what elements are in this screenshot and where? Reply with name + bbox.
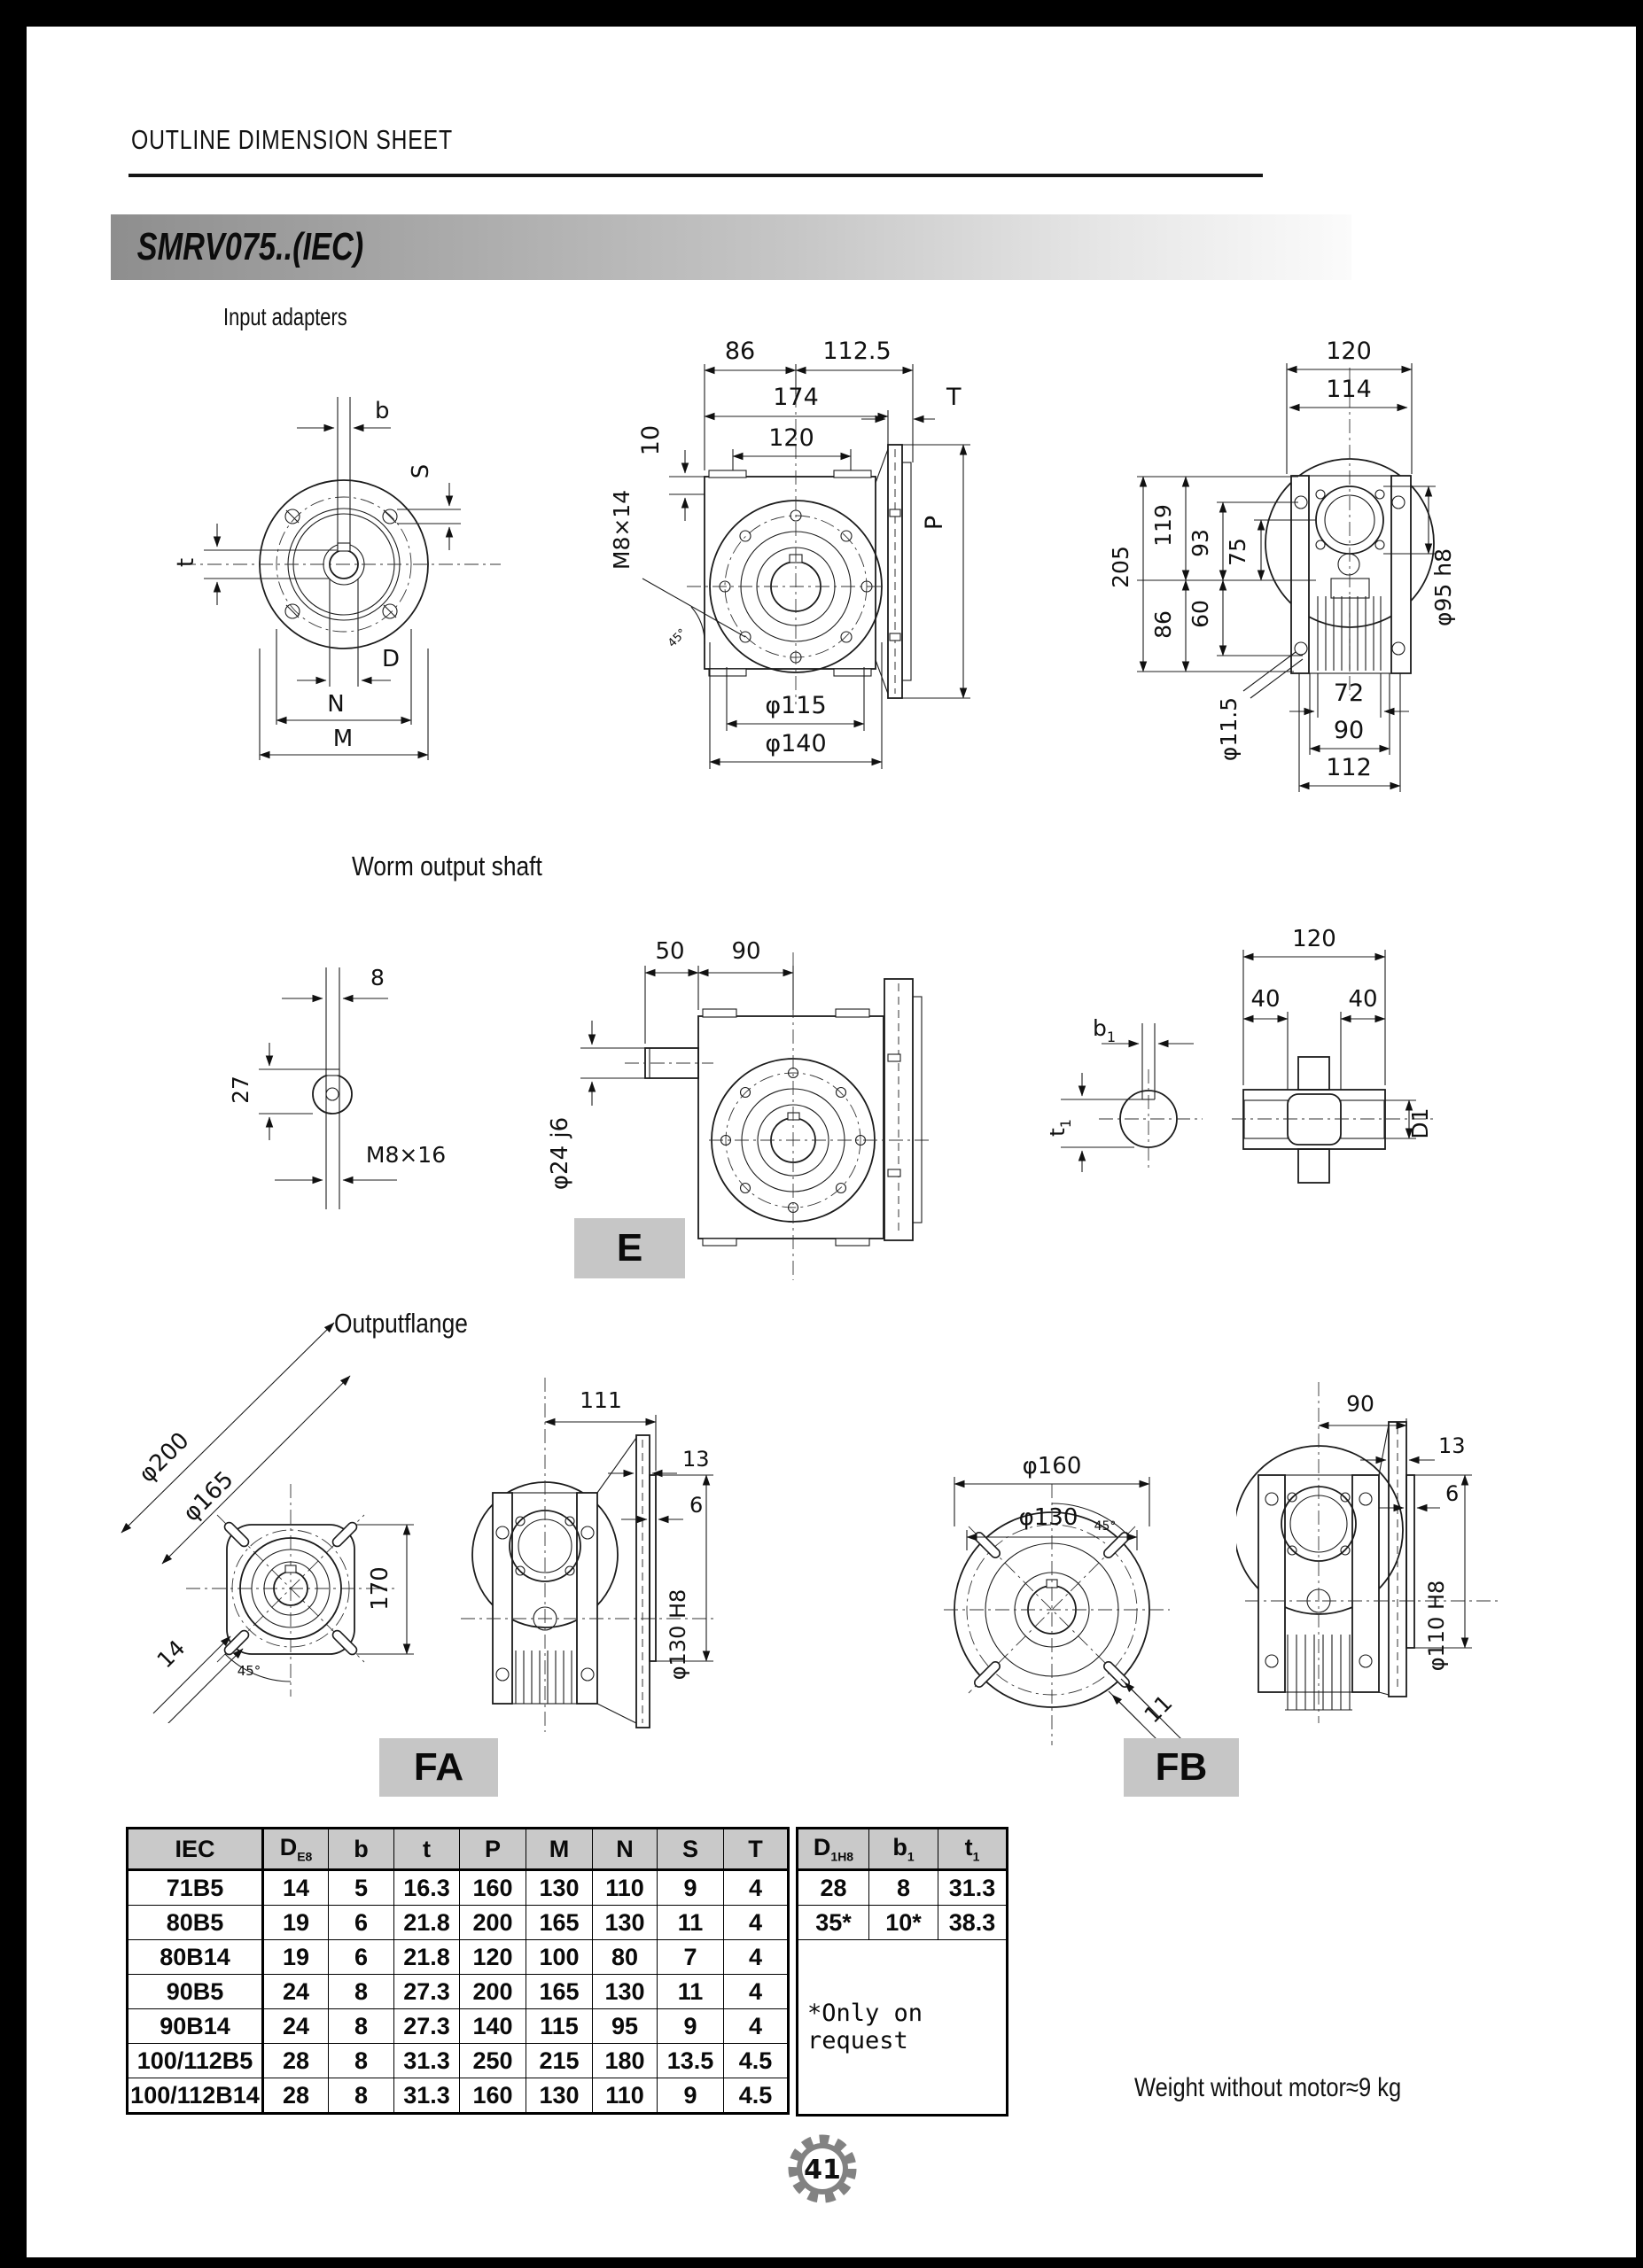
col-header-t1: t1 bbox=[938, 1829, 1008, 1870]
fa-side-drawing: 111 13 6 φ130 H8 bbox=[443, 1369, 736, 1741]
dim-m: M bbox=[333, 726, 353, 752]
angle-45: 45° bbox=[237, 1663, 261, 1679]
gearbox-body bbox=[698, 952, 931, 1280]
dimensions: 120 40 40 D1 bbox=[1243, 926, 1433, 1139]
dim-120: 120 bbox=[768, 424, 814, 452]
dimensions: b S t D N M bbox=[173, 398, 461, 760]
col-header-m: M bbox=[526, 1829, 593, 1870]
frame-right bbox=[1636, 0, 1643, 2268]
dim-t: t bbox=[173, 558, 199, 567]
dim-14: 14 bbox=[152, 1635, 190, 1673]
angle-45: 45° bbox=[1094, 1519, 1117, 1534]
dim-s: S bbox=[408, 464, 434, 479]
variant-badge-e: E bbox=[574, 1218, 685, 1278]
thread-label: M8×14 bbox=[609, 490, 635, 570]
dim-40-right: 40 bbox=[1348, 986, 1377, 1013]
dim-114: 114 bbox=[1326, 376, 1372, 403]
frame-top bbox=[0, 0, 1643, 27]
col-header-t: t bbox=[394, 1829, 460, 1870]
hub-section-drawing: 120 40 40 D1 bbox=[1232, 913, 1436, 1205]
dim-205: 205 bbox=[1112, 546, 1133, 588]
dim-112-5: 112.5 bbox=[822, 341, 891, 365]
page-number-gear-icon: 41 bbox=[787, 2133, 858, 2204]
col-header-t2: T bbox=[724, 1829, 789, 1870]
dim-6: 6 bbox=[689, 1493, 703, 1518]
input-adapter-rear-drawing: 120 114 205 119 86 93 60 75 φ11.5 bbox=[1112, 341, 1484, 802]
col-header-n: N bbox=[593, 1829, 658, 1870]
table-row: 100/112B528831.325021518013.54.5 bbox=[128, 2044, 789, 2078]
cooling-fins bbox=[1318, 596, 1381, 671]
dim-72: 72 bbox=[1334, 680, 1364, 707]
dim-11: 11 bbox=[1139, 1689, 1177, 1728]
table-note: *Only on request bbox=[798, 1940, 1008, 2116]
dim-174: 174 bbox=[773, 384, 819, 411]
col-header-d1: D1H8 bbox=[798, 1829, 869, 1870]
dim-111: 111 bbox=[580, 1387, 622, 1413]
section-title-input-adapters: Input adapters bbox=[223, 303, 347, 331]
gearbox-body bbox=[687, 368, 882, 704]
page-title: OUTLINE DIMENSION SHEET bbox=[131, 124, 453, 156]
dim-90: 90 bbox=[1334, 717, 1364, 744]
variant-fb-label: FB bbox=[1156, 1745, 1208, 1790]
dim-d: D bbox=[382, 646, 400, 672]
flange-geometry bbox=[182, 397, 501, 649]
col-header-p: P bbox=[460, 1829, 526, 1870]
weight-note: Weight without motor≈9 kg bbox=[1134, 2073, 1401, 2103]
fa-front-drawing: φ200 φ165 170 14 45° bbox=[84, 1307, 421, 1723]
table-row: 35*10*38.3 bbox=[798, 1906, 1008, 1940]
table-row: 71B514516.316013011094 bbox=[128, 1870, 789, 1906]
table-row: 28831.3 bbox=[798, 1870, 1008, 1906]
dim-13: 13 bbox=[682, 1447, 710, 1472]
dim-27: 27 bbox=[228, 1076, 253, 1104]
thread-label: M8×16 bbox=[366, 1142, 446, 1168]
frame-left bbox=[0, 0, 27, 2268]
dimensions: φ200 φ165 170 14 45° bbox=[121, 1323, 414, 1723]
dim-phi110: φ110 H8 bbox=[1424, 1581, 1449, 1672]
dim-P: P bbox=[921, 516, 948, 530]
dim-n: N bbox=[327, 691, 344, 718]
dim-60: 60 bbox=[1187, 600, 1213, 628]
col-header-b: b bbox=[329, 1829, 394, 1870]
col-header-b1: b1 bbox=[869, 1829, 938, 1870]
dim-b: b bbox=[375, 398, 390, 424]
page-number: 41 bbox=[804, 2155, 841, 2186]
table-row: 100/112B1428831.316013011094.5 bbox=[128, 2078, 789, 2114]
output-shaft bbox=[625, 1048, 713, 1078]
angle-45: 45° bbox=[666, 626, 689, 650]
dimensions: 111 13 6 φ130 H8 bbox=[545, 1387, 713, 1680]
shaft-geometry bbox=[259, 967, 352, 1209]
dim-8: 8 bbox=[370, 965, 385, 990]
dim-50: 50 bbox=[655, 938, 684, 965]
header-row: D1H8 b1 t1 bbox=[798, 1829, 1008, 1870]
model-title-bar: SMRV075..(IEC) bbox=[111, 214, 1351, 280]
dim-93: 93 bbox=[1187, 529, 1213, 557]
dim-120: 120 bbox=[1326, 341, 1372, 365]
dim-b1: b1 bbox=[1093, 1015, 1116, 1045]
dim-86: 86 bbox=[725, 341, 755, 365]
table-row: 90B1424827.31401159594 bbox=[128, 2009, 789, 2044]
flange-geometry bbox=[186, 1484, 394, 1697]
output-flange-disc bbox=[1379, 1422, 1414, 1697]
dim-86: 86 bbox=[1150, 610, 1176, 639]
flange bbox=[884, 979, 922, 1240]
dim-phi200: φ200 bbox=[134, 1427, 194, 1487]
dim-phi95: φ95 h8 bbox=[1430, 548, 1456, 626]
dim-phi11-5: φ11.5 bbox=[1216, 697, 1242, 761]
variant-badge-fa: FA bbox=[379, 1738, 498, 1797]
input-adapter-front-drawing: b S t D N M bbox=[128, 372, 501, 797]
dimensions: 90 13 6 φ110 H8 bbox=[1319, 1391, 1472, 1671]
section-title-worm-output: Worm output shaft bbox=[352, 850, 542, 882]
dim-phi130: φ130 H8 bbox=[666, 1589, 690, 1681]
header-row: IEC DE8 b t P M N S T bbox=[128, 1829, 789, 1870]
dim-phi24: φ24 j6 bbox=[547, 1117, 573, 1190]
col-header-iec: IEC bbox=[128, 1829, 263, 1870]
hollow-shaft-table: D1H8 b1 t1 28831.3 35*10*38.3 *Only on r… bbox=[796, 1827, 1008, 2117]
hub-end-drawing: b1 t1 bbox=[1050, 970, 1210, 1174]
dim-phi160: φ160 bbox=[1023, 1453, 1082, 1480]
dim-13: 13 bbox=[1438, 1433, 1466, 1458]
dimensions: 50 90 φ24 j6 bbox=[547, 938, 793, 1190]
variant-badge-fb: FB bbox=[1124, 1738, 1239, 1797]
section-geometry bbox=[1232, 1057, 1434, 1183]
dim-phi140: φ140 bbox=[765, 730, 826, 757]
note-row: *Only on request bbox=[798, 1940, 1008, 2116]
header-rule bbox=[128, 174, 1263, 177]
model-name: SMRV075..(IEC) bbox=[111, 225, 363, 269]
col-header-s: S bbox=[658, 1829, 724, 1870]
dim-t1: t1 bbox=[1050, 1119, 1074, 1137]
fb-front-drawing: φ160 φ130 45° 11 bbox=[935, 1369, 1227, 1759]
fb-side-drawing: 90 13 6 φ110 H8 bbox=[1236, 1369, 1520, 1741]
input-adapter-side-drawing: 86 112.5 174 120 T 10 M8×14 45° P φ115 bbox=[580, 341, 979, 784]
col-header-d: DE8 bbox=[263, 1829, 329, 1870]
iec-dimension-table: IEC DE8 b t P M N S T 71B514516.31601301… bbox=[126, 1827, 790, 2115]
dim-phi115: φ115 bbox=[765, 692, 826, 719]
dim-112: 112 bbox=[1326, 754, 1372, 781]
dim-10: 10 bbox=[637, 425, 665, 455]
worm-shaft-end-drawing: 8 27 M8×16 bbox=[213, 957, 479, 1223]
dim-119: 119 bbox=[1150, 504, 1176, 547]
dim-40-left: 40 bbox=[1250, 986, 1280, 1013]
table-row: 80B519621.8200165130114 bbox=[128, 1906, 789, 1940]
dimensions: b1 t1 bbox=[1050, 1015, 1194, 1172]
dim-90: 90 bbox=[731, 938, 760, 965]
dim-120: 120 bbox=[1292, 926, 1336, 952]
dim-phi130: φ130 bbox=[1019, 1504, 1078, 1531]
table-row: 80B1419621.81201008074 bbox=[128, 1940, 789, 1975]
frame-bottom bbox=[0, 2257, 1643, 2268]
dimensions: φ160 φ130 45° 11 bbox=[954, 1453, 1190, 1759]
dim-170: 170 bbox=[367, 1566, 393, 1611]
dim-D1: D1 bbox=[1407, 1107, 1433, 1138]
body-geometry bbox=[1265, 368, 1434, 695]
dim-90: 90 bbox=[1346, 1391, 1374, 1417]
dim-75: 75 bbox=[1225, 538, 1250, 566]
variant-fa-label: FA bbox=[414, 1745, 463, 1790]
dim-6: 6 bbox=[1445, 1481, 1459, 1506]
variant-e-label: E bbox=[617, 1226, 642, 1270]
dim-T: T bbox=[946, 384, 962, 411]
output-flange-disc bbox=[597, 1435, 656, 1728]
datasheet-page: OUTLINE DIMENSION SHEET SMRV075..(IEC) I… bbox=[0, 0, 1643, 2268]
table-row: 90B524827.3200165130114 bbox=[128, 1975, 789, 2009]
